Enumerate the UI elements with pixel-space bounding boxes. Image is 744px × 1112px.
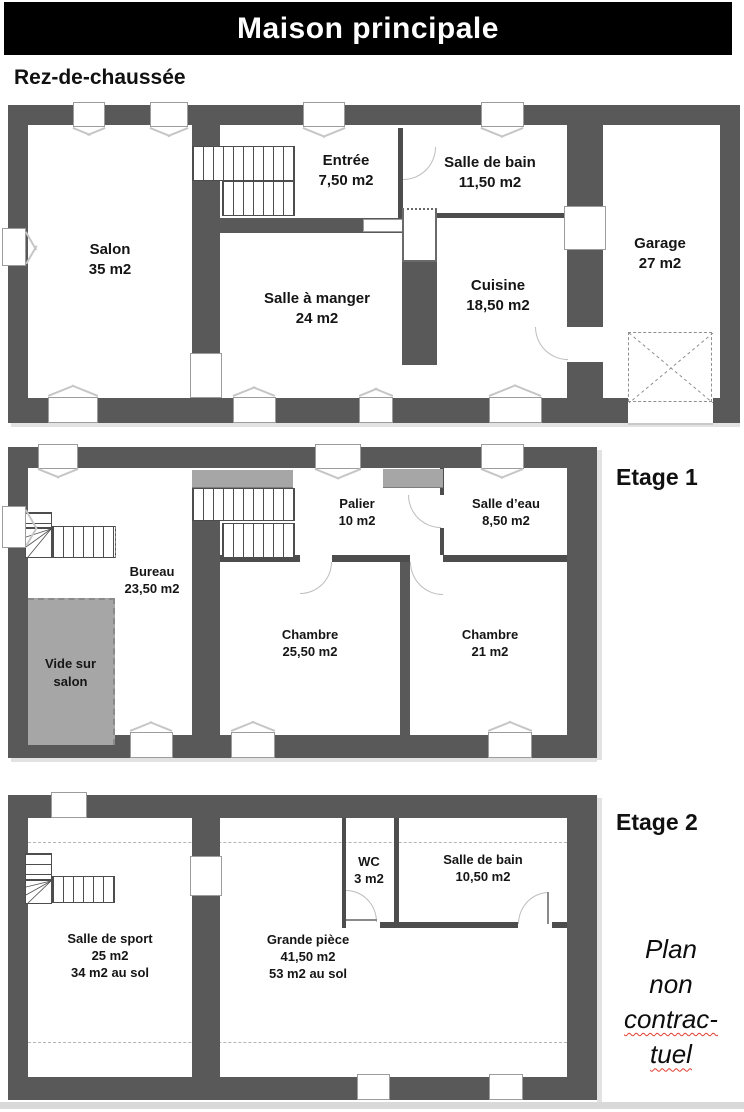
- disclaimer-line-misspelled: tuel: [612, 1037, 730, 1072]
- door-arc: [403, 147, 436, 180]
- stairs-flight: [222, 181, 295, 216]
- window-casement-line: [322, 127, 345, 137]
- window-casement-line: [489, 384, 516, 396]
- disclaimer-line-misspelled: contrac-: [612, 1002, 730, 1037]
- room-name: Bureau: [125, 564, 180, 581]
- window-casement-line: [72, 385, 99, 397]
- room-label-bureau: Bureau 23,50 m2: [125, 564, 180, 598]
- room-name: Chambre: [462, 627, 518, 644]
- window: [231, 732, 275, 758]
- room-floor-area: 53 m2 au sol: [267, 966, 349, 983]
- plan-shadow: [597, 450, 602, 760]
- room-name: Salle de bain: [444, 153, 536, 173]
- void-over-salon: Vide sur salon: [28, 598, 115, 745]
- window: [489, 1074, 523, 1100]
- window-casement-line: [252, 386, 275, 396]
- room-area: 3 m2: [354, 871, 384, 888]
- fixture-box: [402, 208, 437, 262]
- room-label-salle-de-bain-e2: Salle de bain 10,50 m2: [443, 852, 522, 886]
- room-floor-area: 34 m2 au sol: [67, 965, 152, 982]
- winder-lines: [26, 881, 51, 903]
- window: [357, 1074, 390, 1100]
- window-casement-line: [231, 721, 255, 732]
- stairs-winder: [25, 528, 52, 558]
- window-casement-line: [149, 721, 172, 731]
- window-casement-line: [56, 468, 78, 478]
- stairs-flight: [52, 526, 116, 558]
- room-label-grande-piece: Grande pièce 41,50 m2 53 m2 au sol: [267, 932, 349, 983]
- room-label-cuisine: Cuisine 18,50 m2: [466, 276, 529, 315]
- door-arc: [300, 562, 332, 594]
- door-opening: [346, 922, 380, 928]
- room-label-chambre1: Chambre 25,50 m2: [282, 627, 338, 661]
- room-name: Salle de bain: [443, 852, 522, 869]
- room-area: 7,50 m2: [318, 171, 373, 191]
- floor-label-etage2: Etage 2: [616, 809, 698, 836]
- door-leaf: [346, 919, 377, 921]
- door-arc: [410, 562, 443, 595]
- window-casement-line: [374, 388, 393, 397]
- wall: [192, 520, 220, 735]
- ceiling-slope-line: [28, 1042, 567, 1043]
- room-label-salle-deau: Salle d’eau 8,50 m2: [472, 496, 540, 530]
- stairs-flight: [192, 488, 295, 521]
- window: [2, 228, 26, 266]
- door-arc: [408, 495, 441, 528]
- stairs-flight: [25, 853, 52, 880]
- ceiling-slope-line: [28, 842, 567, 843]
- room-area: 41,50 m2: [267, 949, 349, 966]
- window-casement-line: [252, 721, 276, 732]
- room-label-salle-de-sport: Salle de sport 25 m2 34 m2 au sol: [67, 931, 152, 982]
- window: [488, 732, 532, 758]
- title-banner: Maison principale: [4, 2, 732, 55]
- window: [51, 792, 87, 818]
- room-label-garage: Garage 27 m2: [634, 234, 686, 273]
- room-name: Salle d’eau: [472, 496, 540, 513]
- floor-label-etage1: Etage 1: [616, 464, 698, 491]
- disclaimer-text: Plan non contrac- tuel: [612, 932, 730, 1072]
- window: [564, 206, 606, 250]
- window-casement-line: [500, 468, 523, 478]
- window: [190, 353, 222, 398]
- door-leaf: [547, 892, 549, 924]
- window: [48, 397, 98, 423]
- door-arc: [346, 890, 377, 922]
- door-opening: [567, 327, 603, 362]
- room-area: 21 m2: [462, 644, 518, 661]
- room-area: 25 m2: [67, 948, 152, 965]
- wall: [394, 818, 399, 928]
- plan-shadow: [597, 798, 602, 1102]
- window: [359, 397, 393, 423]
- room-label-entree: Entrée 7,50 m2: [318, 151, 373, 190]
- opening-above: [383, 469, 443, 488]
- room-area: 24 m2: [264, 309, 370, 329]
- room-area: 8,50 m2: [472, 513, 540, 530]
- window: [315, 444, 361, 469]
- winder-lines: [26, 529, 51, 557]
- room-area: 27 m2: [634, 254, 686, 274]
- wall: [400, 562, 410, 735]
- opening-above: [192, 470, 293, 488]
- window-casement-line: [509, 721, 533, 732]
- room-label-chambre2: Chambre 21 m2: [462, 627, 518, 661]
- door-arc: [535, 327, 568, 360]
- room-area: 11,50 m2: [444, 173, 536, 193]
- window-casement-line: [337, 468, 362, 479]
- wall: [8, 105, 740, 125]
- window-casement-line: [87, 127, 105, 136]
- stairs-flight: [222, 523, 295, 558]
- room-label-salon: Salon 35 m2: [89, 240, 132, 279]
- room-label-wc: WC 3 m2: [354, 854, 384, 888]
- window: [303, 102, 345, 127]
- void-label: Vide sur salon: [35, 655, 107, 690]
- room-name: Entrée: [318, 151, 373, 171]
- wall: [567, 795, 597, 1100]
- room-label-salle-a-manger: Salle à manger 24 m2: [264, 289, 370, 328]
- window: [2, 506, 26, 548]
- window-casement-line: [500, 127, 523, 137]
- wall: [567, 447, 597, 758]
- window: [233, 397, 276, 423]
- room-name: Cuisine: [466, 276, 529, 296]
- room-label-palier: Palier 10 m2: [339, 496, 376, 530]
- room-name: Salon: [89, 240, 132, 260]
- disclaimer-line: non: [612, 967, 730, 1002]
- window: [481, 444, 524, 469]
- window: [150, 102, 188, 127]
- wall: [402, 262, 437, 365]
- window: [73, 102, 105, 127]
- wall: [8, 795, 28, 1100]
- room-area: 10 m2: [339, 513, 376, 530]
- window-casement-line: [48, 385, 75, 397]
- stairs-flight: [52, 876, 115, 903]
- room-label-salle-de-bain: Salle de bain 11,50 m2: [444, 153, 536, 192]
- door-opening: [410, 555, 443, 562]
- wall-opening: [190, 856, 222, 896]
- window: [130, 732, 173, 758]
- window: [38, 444, 78, 469]
- door-arc: [518, 892, 549, 924]
- stairs-winder: [25, 880, 52, 904]
- floor-plan-page: Maison principale Rez-de-chaussée: [0, 0, 744, 1112]
- room-area: 18,50 m2: [466, 296, 529, 316]
- bottom-strip: [0, 1102, 744, 1109]
- room-area: 35 m2: [89, 260, 132, 280]
- room-name: Salle de sport: [67, 931, 152, 948]
- wall: [8, 447, 28, 758]
- disclaimer-line: Plan: [612, 932, 730, 967]
- room-area: 23,50 m2: [125, 581, 180, 598]
- stairs-flight: [192, 146, 295, 181]
- garage-cross-box: [628, 332, 712, 402]
- wall: [8, 795, 597, 818]
- window: [481, 102, 524, 127]
- room-area: 25,50 m2: [282, 644, 338, 661]
- window-casement-line: [488, 721, 512, 732]
- room-name: Palier: [339, 496, 376, 513]
- floor-label-rdc: Rez-de-chaussée: [14, 66, 186, 90]
- window: [489, 397, 542, 423]
- cross-lines: [629, 333, 713, 403]
- door-opening: [300, 555, 332, 562]
- window-casement-line: [514, 384, 541, 396]
- room-name: Grande pièce: [267, 932, 349, 949]
- wall: [720, 105, 740, 423]
- room-area: 10,50 m2: [443, 869, 522, 886]
- room-name: WC: [354, 854, 384, 871]
- room-name: Chambre: [282, 627, 338, 644]
- room-name: Salle à manger: [264, 289, 370, 309]
- page-title: Maison principale: [237, 12, 499, 46]
- room-name: Garage: [634, 234, 686, 254]
- plan-shadow: [11, 758, 597, 762]
- window-casement-line: [167, 127, 188, 137]
